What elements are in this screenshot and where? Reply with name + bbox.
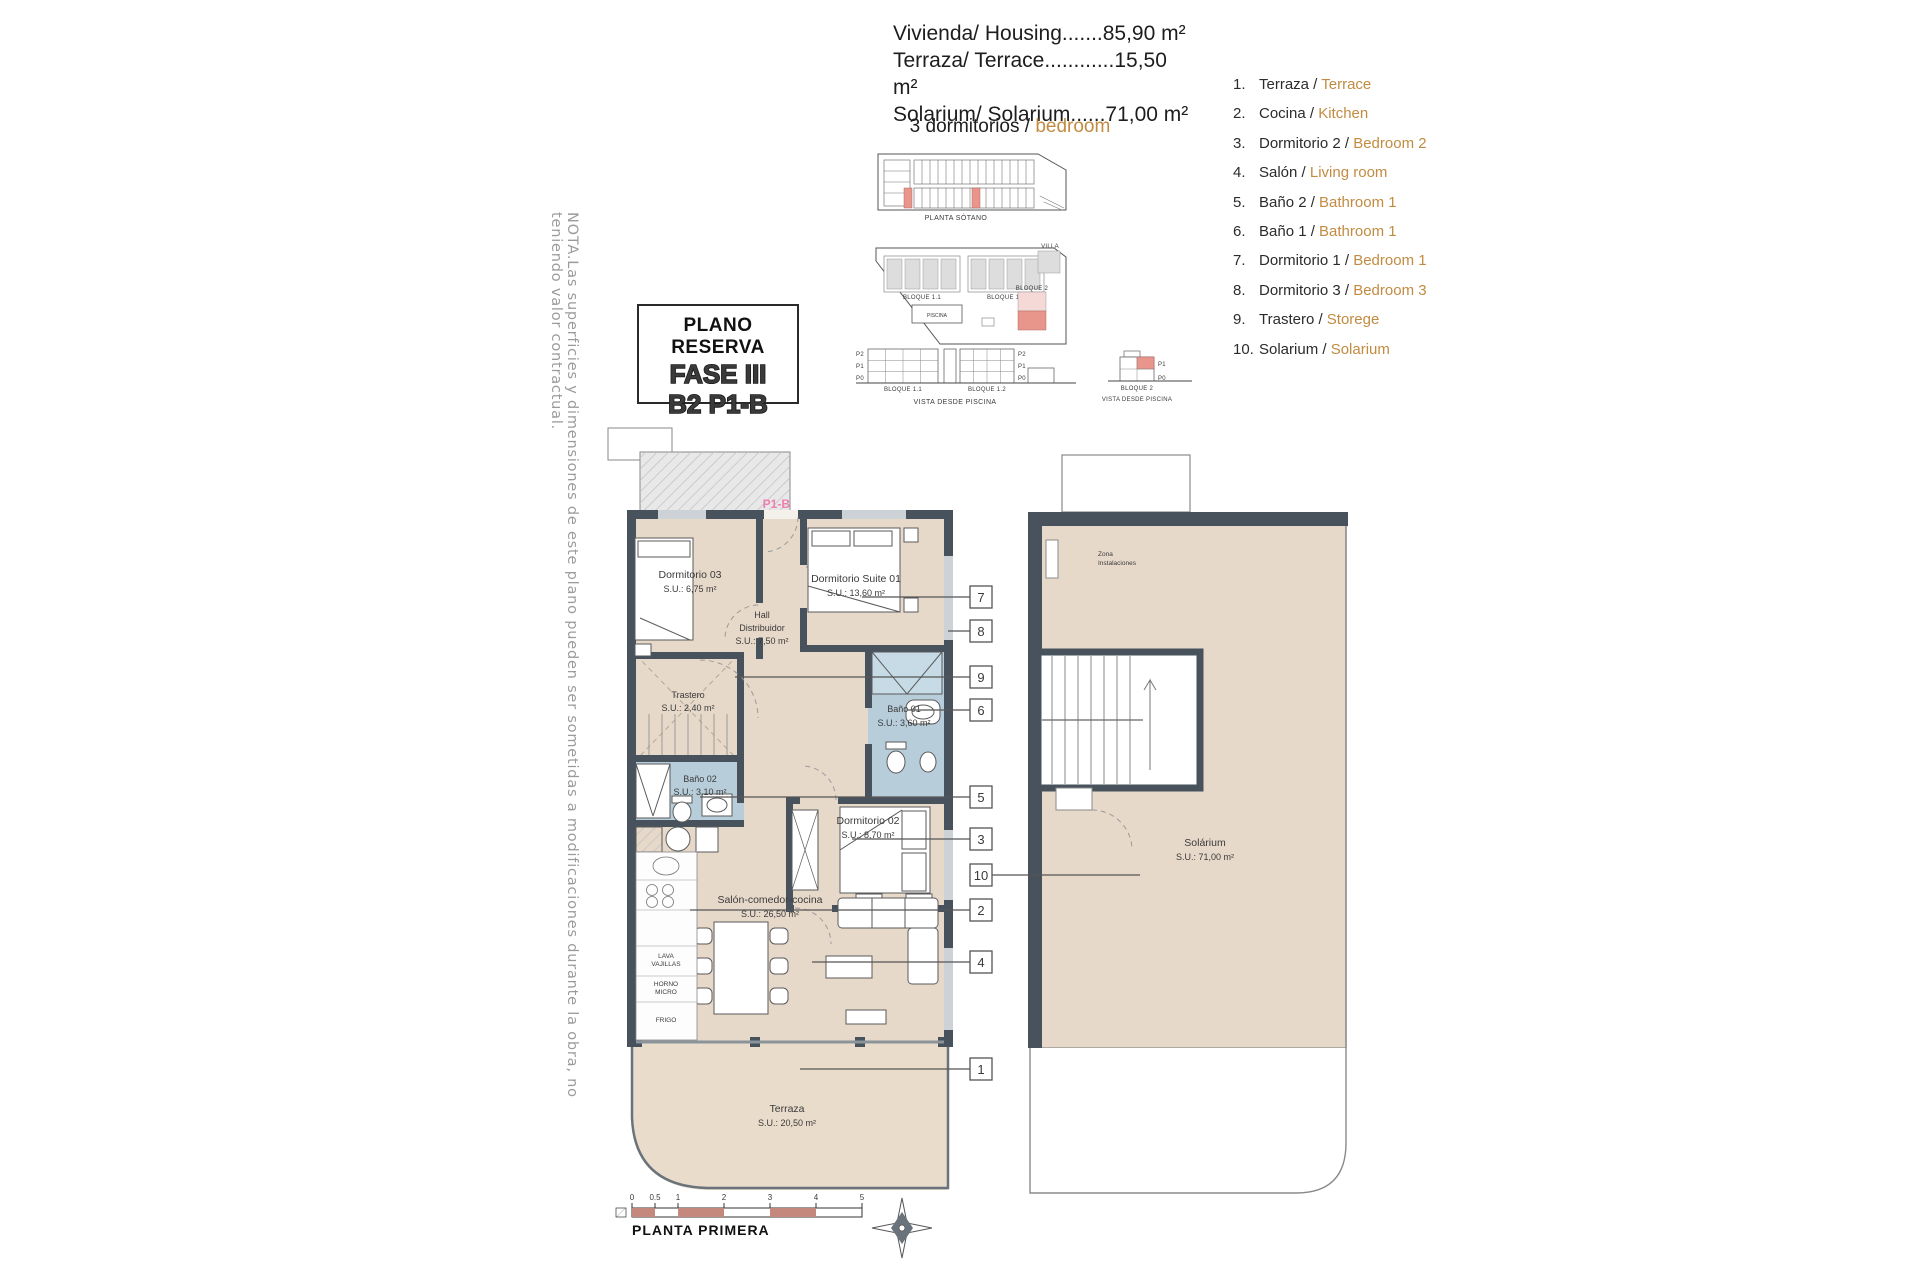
svg-text:Terraza: Terraza xyxy=(769,1103,804,1115)
floor-label-p1-r: P1 xyxy=(1018,364,1026,370)
svg-text:S.U.: 20,50 m²: S.U.: 20,50 m² xyxy=(758,1118,816,1128)
svg-text:5: 5 xyxy=(860,1193,865,1202)
site-diagram-elevations: P2 P1 P0 P2 P1 P0 BLOQUE 1.1 BLOQUE 1.2 … xyxy=(856,349,1192,406)
floor-label-p2-r: P2 xyxy=(1018,352,1026,358)
vista-caption: VISTA DESDE PISCINA xyxy=(914,399,997,406)
svg-text:2: 2 xyxy=(722,1193,727,1202)
svg-text:S.U.: 6,75 m²: S.U.: 6,75 m² xyxy=(663,584,716,594)
elev-bloque12-caption: BLOQUE 1.2 xyxy=(968,387,1006,393)
svg-text:3: 3 xyxy=(768,1193,773,1202)
villa-label: VILLA xyxy=(1041,244,1059,250)
svg-text:Dormitorio Suite 01: Dormitorio Suite 01 xyxy=(811,573,901,585)
oven-label: HORNO xyxy=(654,981,678,988)
svg-text:S.U.: 71,00 m²: S.U.: 71,00 m² xyxy=(1176,852,1234,862)
bloque2-site-label: BLOQUE 2 xyxy=(1016,286,1049,292)
callout-6: 6 xyxy=(977,703,984,718)
b2-floor-p1: P1 xyxy=(1158,362,1166,368)
floor-plan-sheet: NOTA.Las superficies y dimensiones de es… xyxy=(0,0,1920,1280)
callout-9: 9 xyxy=(977,670,984,685)
fridge-label: FRIGO xyxy=(656,1017,677,1024)
callout-10: 10 xyxy=(974,868,988,883)
svg-text:4: 4 xyxy=(814,1193,819,1202)
svg-text:Salón-comedor-cocina: Salón-comedor-cocina xyxy=(717,894,822,906)
basement-caption: PLANTA SÓTANO xyxy=(925,213,988,222)
compass-rose-icon xyxy=(872,1198,932,1258)
svg-text:Distribuidor: Distribuidor xyxy=(739,623,785,633)
svg-text:Dormitorio 02: Dormitorio 02 xyxy=(836,815,899,827)
svg-text:S.U.: 3,10 m²: S.U.: 3,10 m² xyxy=(673,787,726,797)
callout-2: 2 xyxy=(977,903,984,918)
elev-bloque2-caption: BLOQUE 2 xyxy=(1121,386,1154,392)
solarium-label: Solárium xyxy=(1184,837,1226,849)
svg-text:S.U.: 3,60 m²: S.U.: 3,60 m² xyxy=(877,718,930,728)
kitchen-column: LAVA VAJILLAS HORNO MICRO FRIGO xyxy=(636,852,697,1040)
svg-text:VAJILLAS: VAJILLAS xyxy=(651,961,681,968)
svg-text:Instalaciones: Instalaciones xyxy=(1098,560,1137,567)
svg-text:Dormitorio 03: Dormitorio 03 xyxy=(658,569,721,581)
scale-bar: 0 0.5 1 2 3 4 5 xyxy=(616,1193,865,1217)
svg-text:0: 0 xyxy=(630,1193,635,1202)
elev-bloque11-caption: BLOQUE 1.1 xyxy=(884,387,922,393)
svg-text:MICRO: MICRO xyxy=(655,989,677,996)
svg-text:S.U.: 2,40 m²: S.U.: 2,40 m² xyxy=(661,703,714,713)
callout-1: 1 xyxy=(977,1062,984,1077)
svg-text:S.U.: 7,50 m²: S.U.: 7,50 m² xyxy=(735,636,788,646)
piscina-label: PISCINA xyxy=(927,313,948,319)
furniture-dorm03 xyxy=(635,538,693,656)
plan-drawing: PLANTA SÓTANO BLOQUE 1.1 BLOQUE 1.2 VILL… xyxy=(0,0,1920,1280)
svg-text:Baño 01: Baño 01 xyxy=(887,704,921,714)
apartment-plan: P1-B xyxy=(608,428,953,1190)
svg-text:Trastero: Trastero xyxy=(671,690,704,700)
svg-text:Baño 02: Baño 02 xyxy=(683,774,717,784)
callout-3: 3 xyxy=(977,832,984,847)
site-diagram-basement: PLANTA SÓTANO xyxy=(878,154,1066,222)
floor-label-p0-r: P0 xyxy=(1018,376,1026,382)
svg-text:0.5: 0.5 xyxy=(649,1193,661,1202)
unit-tag: P1-B xyxy=(763,497,791,511)
zona-label: Zona xyxy=(1098,551,1113,558)
solarium-plan: Zona Instalaciones Solárium S.U.: 71,00 … xyxy=(1028,455,1348,1193)
floor-label-p2: P2 xyxy=(856,352,864,358)
vista2-caption: VISTA DESDE PISCINA xyxy=(1102,397,1172,403)
callout-4: 4 xyxy=(977,955,984,970)
callout-5: 5 xyxy=(977,790,984,805)
svg-text:Hall: Hall xyxy=(754,610,770,620)
callout-8: 8 xyxy=(977,624,984,639)
floor-label-p0: P0 xyxy=(856,376,864,382)
dishwasher-label: LAVA xyxy=(658,953,674,960)
bloque11-label: BLOQUE 1.1 xyxy=(903,295,941,301)
svg-text:1: 1 xyxy=(676,1193,681,1202)
floor-label-p1: P1 xyxy=(856,364,864,370)
site-diagram-plot: BLOQUE 1.1 BLOQUE 1.2 VILLA BLOQUE 2 PIS… xyxy=(876,244,1066,344)
callout-7: 7 xyxy=(977,590,984,605)
